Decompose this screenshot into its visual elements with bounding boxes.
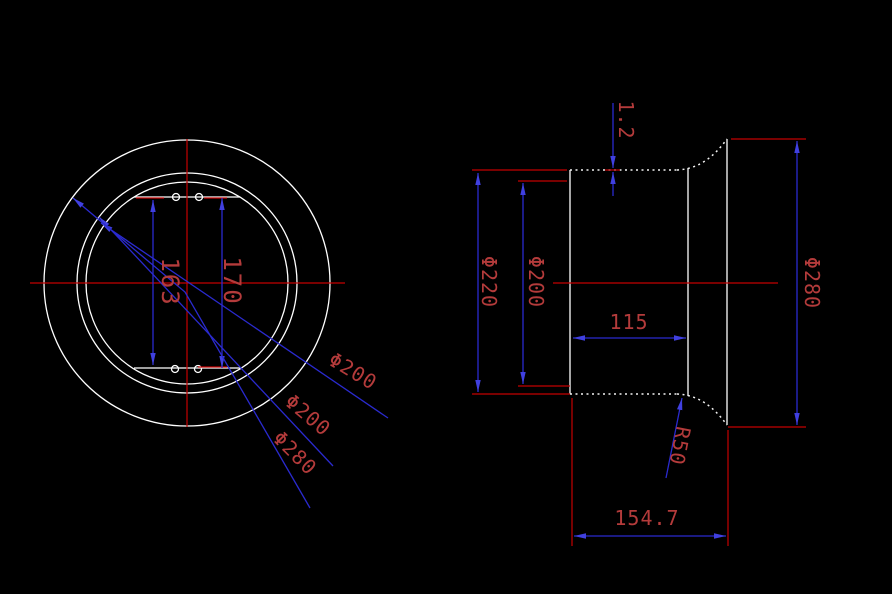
flare-curve-top xyxy=(677,139,727,170)
side-view: 1.2 Φ220 Φ200 Φ280 115 154.7 R50 xyxy=(472,100,824,546)
leader-phi280 xyxy=(73,198,310,508)
dim-text-phi200: Φ200 xyxy=(524,256,548,308)
leader-text-phi200-a: Φ200 xyxy=(324,347,381,394)
leader-phi200-a xyxy=(101,223,388,418)
dim-text-phi280: Φ280 xyxy=(800,257,824,309)
dim-text-115: 115 xyxy=(609,310,648,334)
leader-phi200-b xyxy=(99,217,333,466)
dim-text-phi220: Φ220 xyxy=(477,256,501,308)
hole-bottom-left xyxy=(172,366,179,373)
dim-text-170: 170 xyxy=(218,256,246,305)
dim-text-wall: 1.2 xyxy=(614,100,638,139)
dim-text-154-7: 154.7 xyxy=(614,506,679,530)
flare-curve-bottom xyxy=(677,394,727,425)
cad-canvas[interactable]: 163 170 Φ200 Φ200 Φ280 xyxy=(0,0,892,594)
front-view: 163 170 Φ200 Φ200 Φ280 xyxy=(30,139,388,508)
dim-text-163: 163 xyxy=(156,257,184,306)
dim-text-r50: R50 xyxy=(664,425,695,468)
